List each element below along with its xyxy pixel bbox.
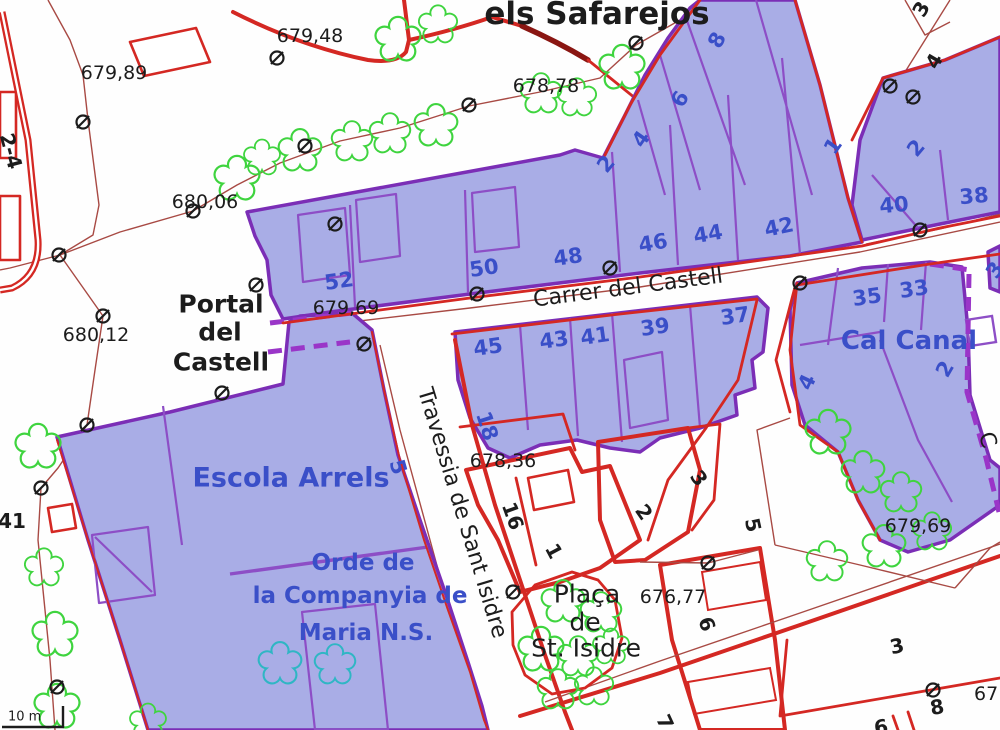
parcel-number: 37 xyxy=(719,302,751,330)
elevation-label: 676,77 xyxy=(640,586,706,608)
benchmark-icon xyxy=(53,249,66,262)
benchmark-icon xyxy=(507,586,520,599)
elevation-label: 679,69 xyxy=(885,515,951,537)
house-number: 1 xyxy=(540,539,568,563)
parcel-number: 41 xyxy=(579,322,611,350)
benchmark-icon xyxy=(271,52,284,65)
building-notch xyxy=(528,470,574,510)
tree-icon xyxy=(600,45,645,89)
house-number: 3 xyxy=(888,633,907,659)
tree-icon xyxy=(25,548,63,585)
elevation-label: 67 xyxy=(974,683,998,705)
benchmark-icon xyxy=(77,116,90,129)
parcel-number: 52 xyxy=(323,267,355,295)
cadastral-map: els Safarejos Portal del Castell Plaça d… xyxy=(0,0,1000,730)
tree-icon xyxy=(33,612,78,656)
small-red-square xyxy=(48,504,76,532)
place-name-portal: del xyxy=(198,318,241,347)
parcel-edge xyxy=(780,640,1000,730)
parcel-number: 44 xyxy=(692,220,725,249)
tree-icon xyxy=(244,140,280,175)
building-outline xyxy=(0,196,20,260)
house-number: 3 xyxy=(685,465,713,490)
parcel-block-escola xyxy=(57,313,488,730)
place-name-portal: Castell xyxy=(173,348,269,377)
elevation-label: 678,36 xyxy=(470,450,536,472)
house-number: 7 xyxy=(651,711,679,730)
place-name-placa: Plaça xyxy=(554,580,620,609)
elevation-label: 678,78 xyxy=(513,75,579,97)
place-name-placa: de xyxy=(569,608,600,637)
parcel-number: 46 xyxy=(637,229,670,258)
parcel-number: 35 xyxy=(851,283,883,311)
parcel-number: 43 xyxy=(538,326,570,354)
parcel-number: 50 xyxy=(468,254,500,282)
benchmark-icon xyxy=(299,140,312,153)
place-name-placa: St. Isidre xyxy=(531,634,641,663)
elevation-label: 679,48 xyxy=(277,25,343,47)
building-name-escola-arrels: Escola Arrels xyxy=(192,463,389,494)
parcel-number: 40 xyxy=(878,192,909,218)
elevation-label: 680,06 xyxy=(172,191,238,213)
parcel-block-northeast xyxy=(852,37,1000,240)
building-name-orde: Maria N.S. xyxy=(299,620,433,646)
parcel-number: 38 xyxy=(958,183,989,209)
building-name-orde: Orde de xyxy=(311,550,414,576)
house-number: 3 xyxy=(907,0,935,21)
scale-bar-label: 10 m xyxy=(8,710,41,725)
parcel-number: 48 xyxy=(552,243,584,271)
tree-icon xyxy=(415,104,458,145)
area-name-els-safarejos: els Safarejos xyxy=(484,0,709,32)
building-outline xyxy=(688,668,776,714)
elevation-label: 679,89 xyxy=(81,62,147,84)
parcel-number: 45 xyxy=(472,333,504,361)
house-number: 5 xyxy=(740,516,766,535)
tree-icon xyxy=(16,424,61,468)
elevation-label: 680,12 xyxy=(63,324,129,346)
building-name-orde: la Companyia de xyxy=(253,583,468,609)
house-number: 8 xyxy=(928,694,946,720)
parcel-number: 33 xyxy=(898,275,930,303)
house-number: 6 xyxy=(872,714,890,730)
house-number: 6 xyxy=(693,613,720,634)
elevation-label: 679,69 xyxy=(313,297,379,319)
house-number: 41 xyxy=(0,509,26,533)
place-name-portal: Portal xyxy=(178,290,263,319)
building-name-cal-canal: Cal Canal xyxy=(841,326,977,356)
parcel-number: 39 xyxy=(639,313,671,341)
house-number: 2-4 xyxy=(0,130,27,171)
tree-icon xyxy=(332,121,372,160)
